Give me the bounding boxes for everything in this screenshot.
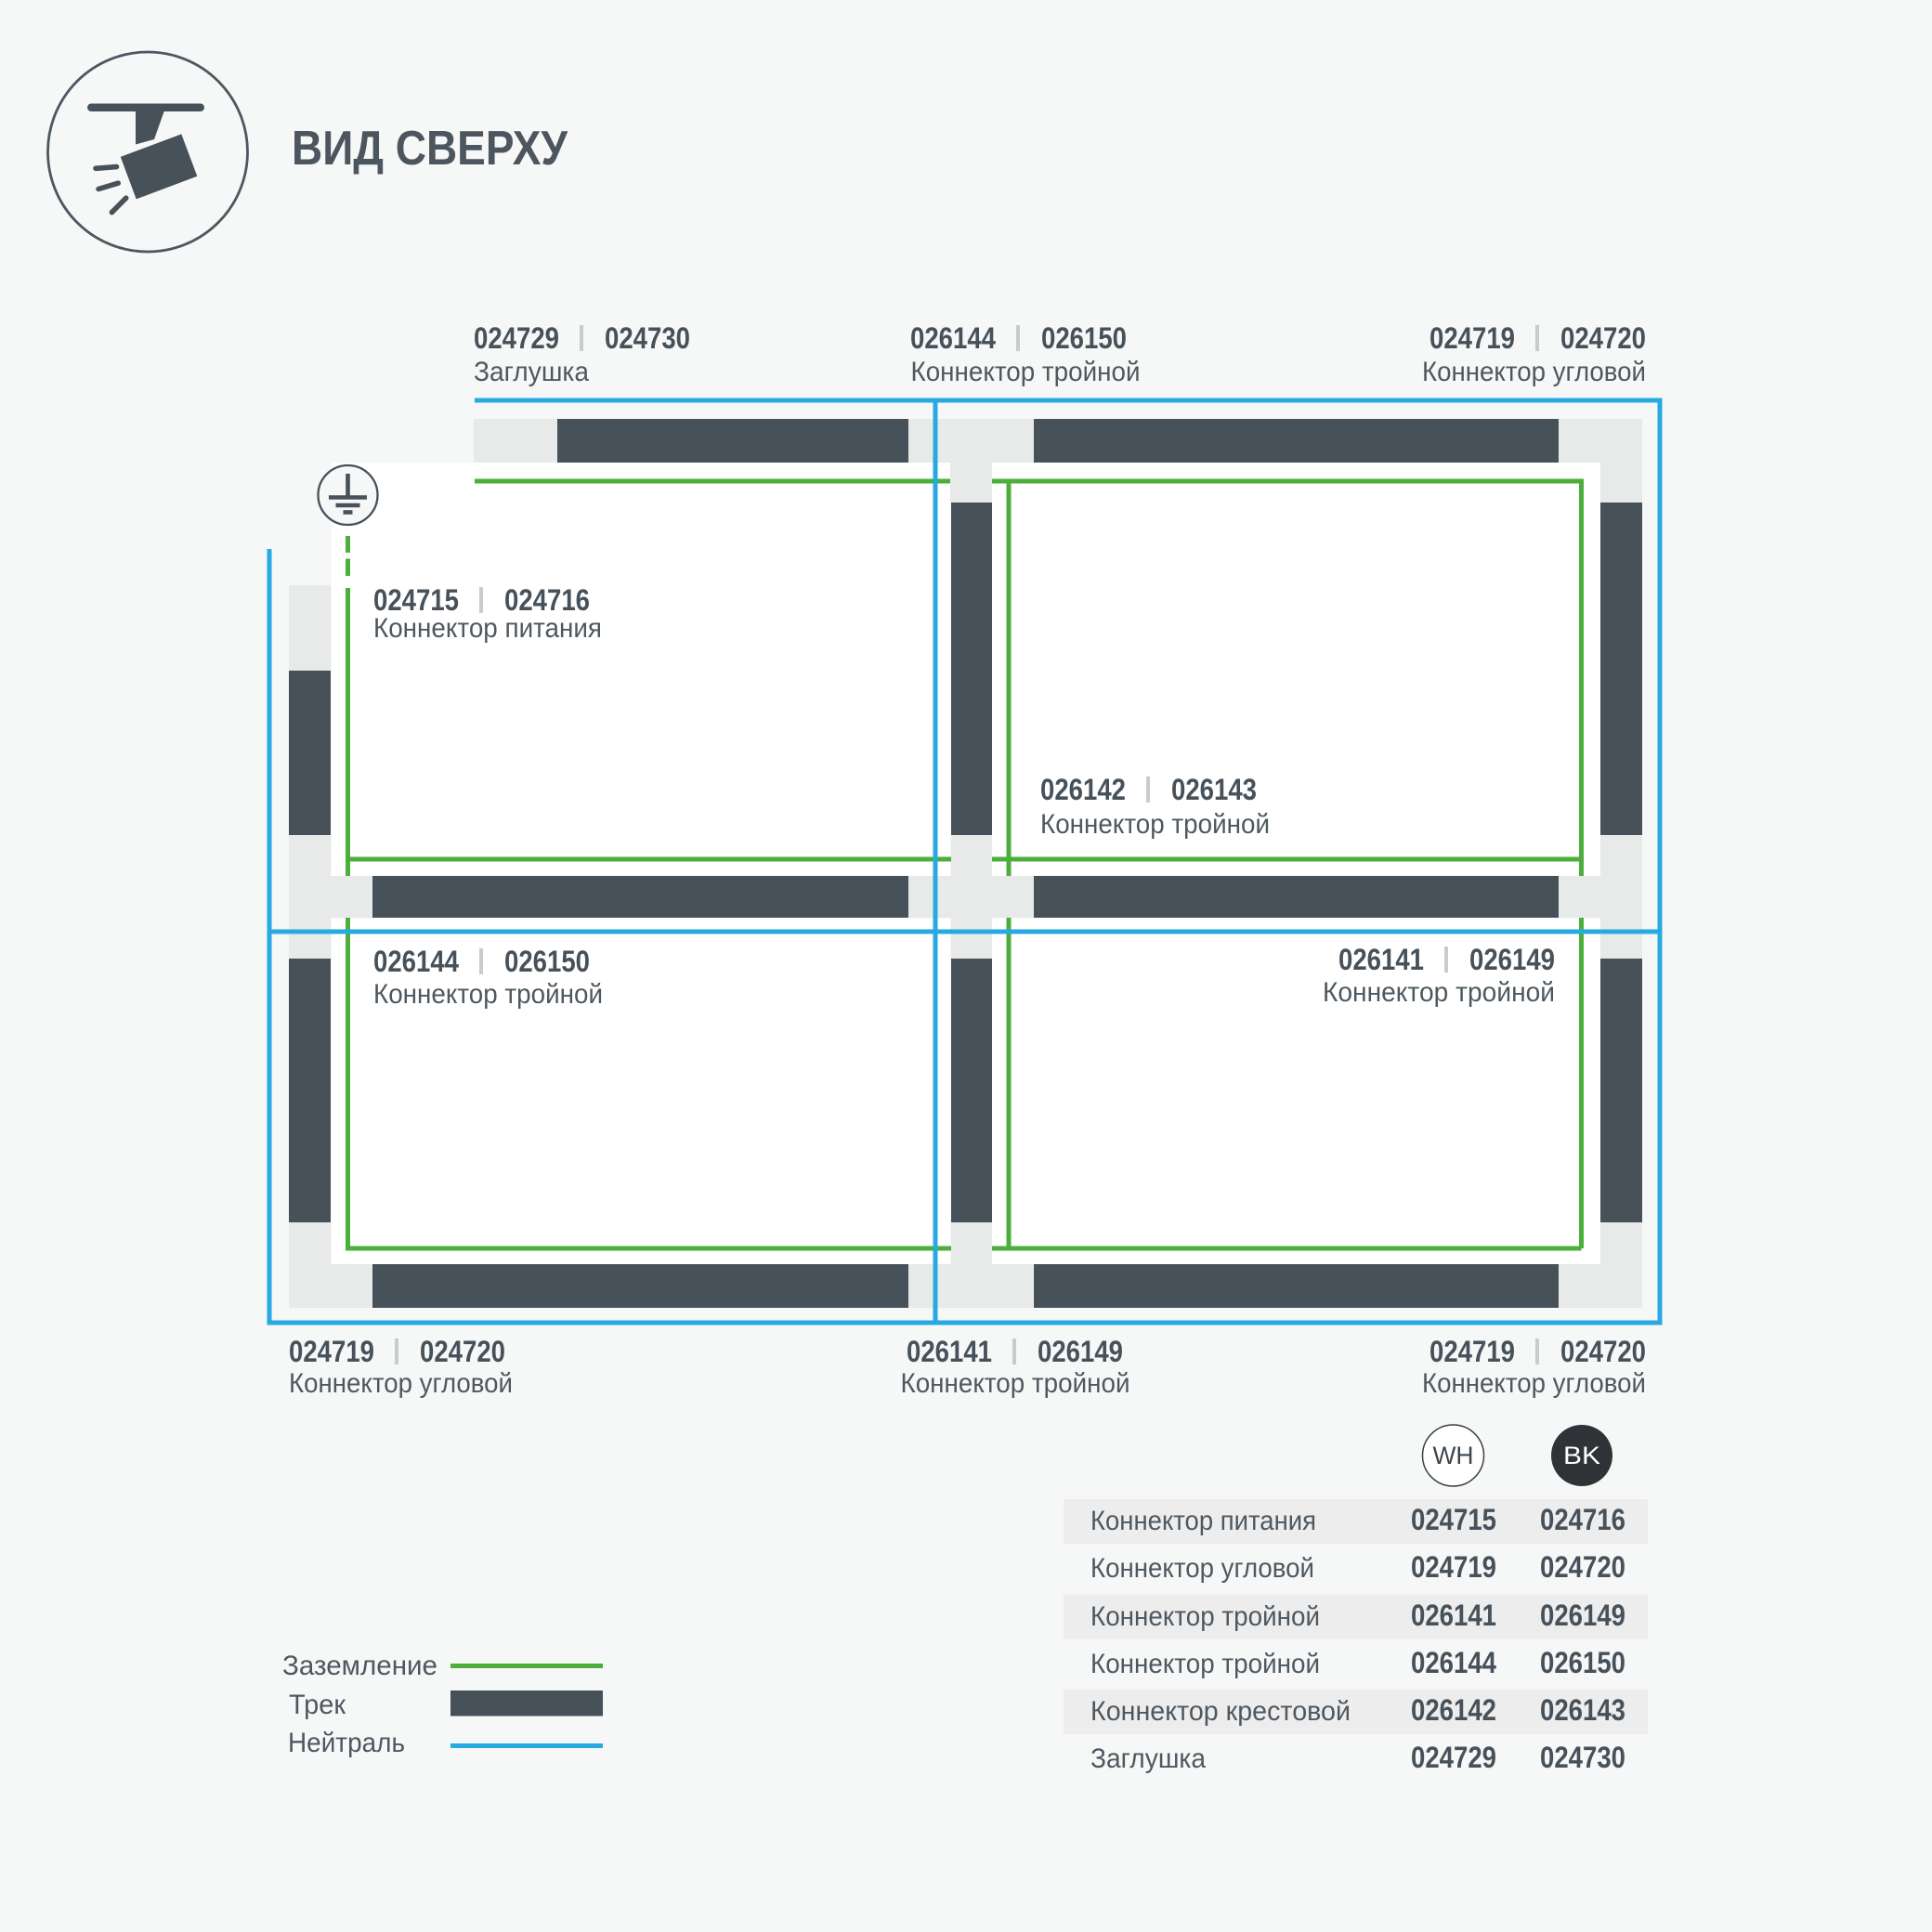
svg-text:Коннектор тройной: Коннектор тройной: [1040, 809, 1270, 840]
svg-text:026142: 026142: [1411, 1693, 1496, 1727]
svg-text:024730: 024730: [1540, 1741, 1625, 1774]
svg-text:026150: 026150: [504, 945, 590, 978]
svg-text:Коннектор угловой: Коннектор угловой: [1422, 357, 1646, 387]
svg-text:024729: 024729: [1411, 1741, 1496, 1774]
svg-text:026150: 026150: [1540, 1646, 1625, 1679]
svg-text:Коннектор тройной: Коннектор тройной: [1090, 1601, 1320, 1632]
svg-text:ВИД СВЕРХУ: ВИД СВЕРХУ: [292, 121, 568, 175]
svg-text:Коннектор угловой: Коннектор угловой: [289, 1368, 513, 1399]
svg-text:026141: 026141: [907, 1335, 992, 1368]
svg-text:Коннектор тройной: Коннектор тройной: [901, 1368, 1130, 1399]
svg-text:024720: 024720: [1540, 1550, 1625, 1584]
svg-text:026143: 026143: [1540, 1693, 1625, 1727]
svg-text:Коннектор тройной: Коннектор тройной: [911, 357, 1141, 387]
svg-text:Коннектор тройной: Коннектор тройной: [373, 979, 603, 1010]
svg-text:Трек: Трек: [289, 1690, 346, 1720]
svg-text:Коннектор угловой: Коннектор угловой: [1422, 1368, 1646, 1399]
svg-text:Коннектор питания: Коннектор питания: [373, 613, 602, 644]
svg-text:Нейтраль: Нейтраль: [288, 1728, 405, 1758]
svg-text:026141: 026141: [1411, 1599, 1496, 1632]
svg-text:024719: 024719: [289, 1335, 374, 1368]
svg-text:Коннектор угловой: Коннектор угловой: [1090, 1553, 1314, 1584]
svg-text:026142: 026142: [1040, 773, 1126, 806]
svg-text:024719: 024719: [1429, 1335, 1515, 1368]
svg-text:024715: 024715: [1411, 1503, 1496, 1536]
svg-text:026143: 026143: [1171, 773, 1257, 806]
svg-text:Коннектор тройной: Коннектор тройной: [1090, 1649, 1320, 1679]
svg-text:024719: 024719: [1411, 1550, 1496, 1584]
svg-text:Коннектор крестовой: Коннектор крестовой: [1090, 1696, 1351, 1727]
svg-text:024730: 024730: [605, 321, 690, 355]
svg-text:Коннектор питания: Коннектор питания: [1090, 1506, 1316, 1536]
svg-text:026144: 026144: [910, 321, 996, 355]
svg-text:WH: WH: [1433, 1442, 1474, 1469]
svg-text:024720: 024720: [1560, 1335, 1646, 1368]
svg-text:BK: BK: [1563, 1442, 1600, 1469]
svg-text:026149: 026149: [1540, 1599, 1625, 1632]
svg-text:026150: 026150: [1041, 321, 1127, 355]
svg-text:026141: 026141: [1338, 943, 1424, 976]
svg-text:024729: 024729: [474, 321, 559, 355]
svg-text:024720: 024720: [1560, 321, 1646, 355]
svg-text:026149: 026149: [1038, 1335, 1123, 1368]
svg-text:024715: 024715: [373, 583, 459, 617]
svg-text:026144: 026144: [373, 945, 459, 978]
svg-text:026149: 026149: [1469, 943, 1555, 976]
svg-text:Заглушка: Заглушка: [1090, 1743, 1206, 1774]
svg-text:026144: 026144: [1411, 1646, 1496, 1679]
svg-text:024716: 024716: [504, 583, 590, 617]
svg-text:024720: 024720: [420, 1335, 505, 1368]
svg-text:Заглушка: Заглушка: [474, 357, 589, 387]
svg-text:024716: 024716: [1540, 1503, 1625, 1536]
svg-text:024719: 024719: [1429, 321, 1515, 355]
svg-text:Заземление: Заземление: [282, 1651, 437, 1681]
svg-text:Коннектор тройной: Коннектор тройной: [1323, 977, 1555, 1008]
